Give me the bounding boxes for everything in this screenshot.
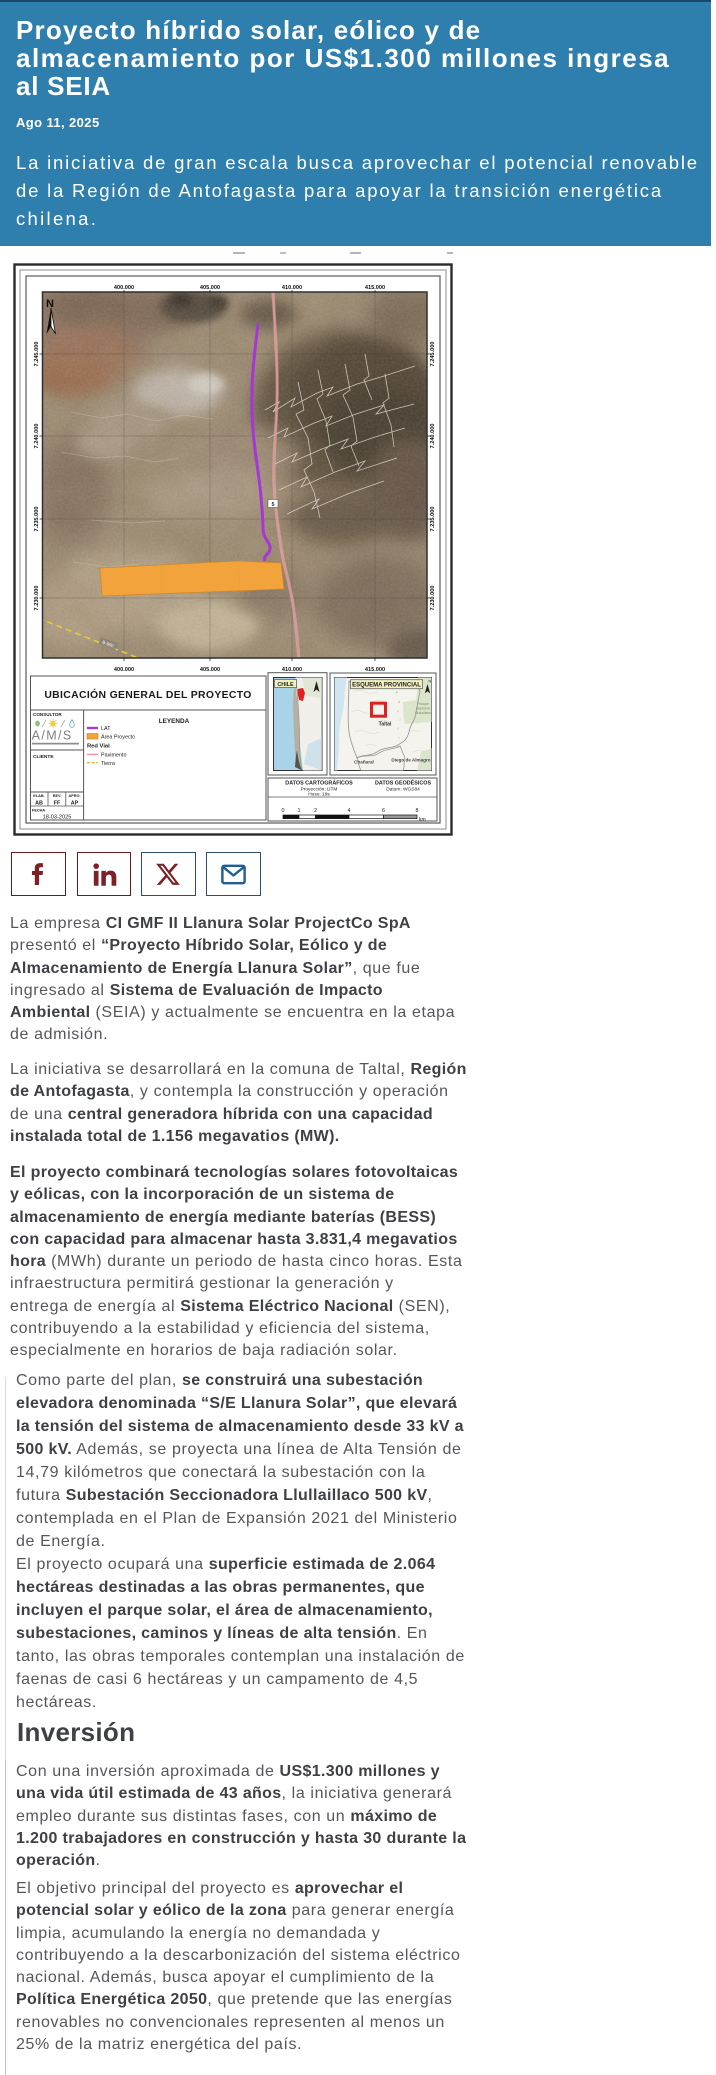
svg-text:6: 6 bbox=[382, 808, 385, 814]
svg-text:N: N bbox=[429, 680, 432, 684]
svg-text:CLIENTE: CLIENTE bbox=[33, 754, 54, 760]
svg-text:7.245.000: 7.245.000 bbox=[34, 342, 40, 367]
svg-text:DATOS GEODÉSICOS: DATOS GEODÉSICOS bbox=[375, 779, 432, 787]
svg-text:AB: AB bbox=[35, 801, 43, 807]
svg-text:7.230.000: 7.230.000 bbox=[34, 586, 40, 611]
svg-text:7.245.000: 7.245.000 bbox=[430, 342, 436, 367]
svg-text:Diego de Almagro: Diego de Almagro bbox=[391, 758, 430, 763]
svg-text:Red Vial: Red Vial bbox=[87, 744, 110, 750]
svg-text:8: 8 bbox=[416, 808, 419, 814]
svg-text:í: í bbox=[400, 718, 401, 722]
svg-text:410.000: 410.000 bbox=[282, 667, 302, 673]
svg-text:4: 4 bbox=[348, 808, 351, 814]
svg-text:Chañaral: Chañaral bbox=[354, 760, 374, 765]
svg-text:7.235.000: 7.235.000 bbox=[430, 507, 436, 532]
svg-text:Parque: Parque bbox=[417, 702, 429, 706]
svg-text:APRO.: APRO. bbox=[68, 794, 80, 798]
svg-text:400.000: 400.000 bbox=[114, 667, 134, 673]
svg-text:Nacional: Nacional bbox=[416, 707, 430, 711]
svg-text:Tierra: Tierra bbox=[101, 761, 115, 767]
svg-text:c: c bbox=[397, 709, 399, 713]
svg-text:FF: FF bbox=[54, 801, 61, 807]
svg-text:N: N bbox=[46, 298, 54, 310]
svg-text:c: c bbox=[397, 745, 399, 749]
svg-text:LEYENDA: LEYENDA bbox=[159, 718, 190, 725]
svg-text:a: a bbox=[398, 700, 400, 704]
svg-text:Huso: 19s: Huso: 19s bbox=[308, 792, 330, 798]
svg-text:f: f bbox=[398, 727, 399, 731]
svg-text:UBICACIÓN GENERAL DEL PROYECTO: UBICACIÓN GENERAL DEL PROYECTO bbox=[44, 688, 251, 701]
svg-text:0: 0 bbox=[282, 808, 285, 814]
svg-text:405.000: 405.000 bbox=[200, 667, 220, 673]
svg-text:18-03-2025: 18-03-2025 bbox=[43, 815, 72, 821]
svg-text:7.230.000: 7.230.000 bbox=[430, 586, 436, 611]
svg-text:2: 2 bbox=[314, 808, 317, 814]
svg-text:FECHA: FECHA bbox=[32, 809, 45, 813]
svg-text:Taltal: Taltal bbox=[379, 722, 392, 728]
svg-text:Llullaillaco: Llullaillaco bbox=[415, 711, 432, 715]
svg-text:AP: AP bbox=[71, 801, 79, 807]
svg-text:REV.: REV. bbox=[53, 794, 62, 798]
svg-text:DATOS CARTOGRÁFICOS: DATOS CARTOGRÁFICOS bbox=[285, 780, 353, 787]
svg-text:Pavimento: Pavimento bbox=[101, 753, 126, 759]
svg-text:CHILE: CHILE bbox=[277, 682, 294, 688]
svg-text:7.240.000: 7.240.000 bbox=[34, 424, 40, 449]
svg-text:Datum: WGS84: Datum: WGS84 bbox=[386, 787, 420, 793]
svg-text:Área Proyecto: Área Proyecto bbox=[101, 734, 135, 741]
svg-text:LAT: LAT bbox=[101, 726, 111, 732]
svg-text:CONSULTOR: CONSULTOR bbox=[33, 712, 62, 717]
svg-text:A/M/S: A/M/S bbox=[32, 729, 73, 743]
svg-text:5: 5 bbox=[271, 502, 274, 508]
svg-text:ESQUEMA PROVINCIAL: ESQUEMA PROVINCIAL bbox=[352, 683, 421, 689]
svg-text:km: km bbox=[419, 817, 426, 823]
svg-text:1: 1 bbox=[298, 808, 301, 814]
svg-text:7.235.000: 7.235.000 bbox=[34, 507, 40, 532]
svg-text:415.000: 415.000 bbox=[365, 667, 385, 673]
svg-text:ELAB.: ELAB. bbox=[33, 794, 44, 798]
svg-text:7.240.000: 7.240.000 bbox=[430, 424, 436, 449]
